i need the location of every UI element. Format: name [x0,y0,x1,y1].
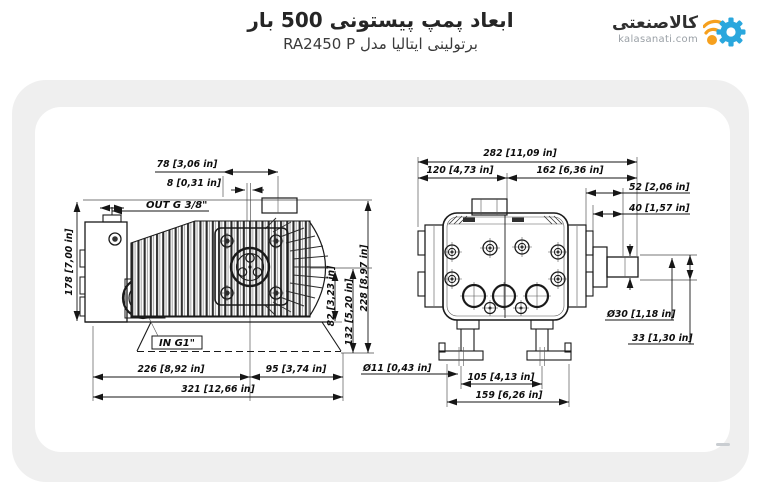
hex-bolt [442,269,462,289]
dim-shaft-diameter: Ø30 [1,18 in] [606,309,676,320]
hex-bolt [548,269,568,289]
dim-flange-offset: 78 [3,06 in] [157,159,218,170]
small-bolt [513,300,529,316]
brand-text: کالاصنعتی kalasanati.com [612,13,698,45]
drive-shaft [593,247,638,287]
left-foot [439,320,483,366]
dim-shaft-step: 40 [1,57 in] [628,203,690,214]
pump-head-block [80,207,127,322]
right-side-flange [568,225,593,307]
dim-left-width: 120 [4,73 in] [426,165,494,176]
shaft-hub [231,248,269,286]
dim-shaft-to-base: 132 [5,20 in] [344,278,355,346]
hex-bolt [442,242,462,262]
left-side-flange [418,225,443,307]
dim-foot-span: 159 [6,26 in] [475,390,543,401]
nameplate [463,218,475,223]
valve-port [460,282,488,310]
stray-mark [716,443,730,446]
hex-bolt [512,237,532,257]
gear-icon [717,18,746,47]
dim-rear-length: 95 [3,74 in] [266,364,327,375]
dim-total-length: 321 [12,66 in] [181,384,255,395]
technical-drawing: 78 [3,06 in] 8 [0,31 in] OUT G 3/8" IN G… [35,107,730,452]
front-extension-lines [418,157,697,407]
gear-wifi-icon [703,9,747,49]
mounting-feet [439,320,571,366]
brand-domain: kalasanati.com [618,34,698,45]
valve-ports [460,282,551,316]
dim-fin-pitch: 8 [0,31 in] [167,178,222,189]
wifi-dot [707,35,717,45]
dim-total-height: 228 [8,97 in] [359,244,370,312]
right-foot [527,320,571,366]
dim-foot-hole-spacing: 105 [4,13 in] [467,372,535,383]
label-outlet-port: OUT G 3/8" [146,200,207,211]
front-view: 282 [11,09 in] 120 [4,73 in] 162 [6,36 i… [361,148,697,407]
valve-port [523,282,551,310]
nameplate [512,218,524,223]
brand-name: کالاصنعتی [612,13,698,33]
valve-port [490,282,518,310]
hex-bolt [548,242,568,262]
dim-total-width: 282 [11,09 in] [483,148,557,159]
side-view: 78 [3,06 in] 8 [0,31 in] OUT G 3/8" IN G… [64,159,374,401]
dim-head-length: 226 [8,92 in] [137,364,205,375]
brand-logo: کالاصنعتی kalasanati.com [612,9,747,49]
dim-shaft-key-height: 33 [1,30 in] [632,333,693,344]
dim-foot-hole-diameter: Ø11 [0,43 in] [362,363,432,374]
cooling-fins [85,221,331,322]
dim-body-height: 178 [7,00 in] [64,228,75,296]
diagram-card-outer: 78 [3,06 in] 8 [0,31 in] OUT G 3/8" IN G… [12,80,749,482]
dim-right-width: 162 [6,36 in] [536,165,604,176]
label-inlet-port: IN G1" [159,338,195,349]
crankcase-front [443,199,568,320]
dim-shaft-to-foot: 82 [3,23 in] [326,265,337,326]
page: { "header": { "title": "ابعاد پمپ پیستون… [0,0,761,492]
diagram-card: 78 [3,06 in] 8 [0,31 in] OUT G 3/8" IN G… [35,107,730,452]
hex-bolt [480,238,500,258]
dim-shaft-length: 52 [2,06 in] [629,182,690,193]
